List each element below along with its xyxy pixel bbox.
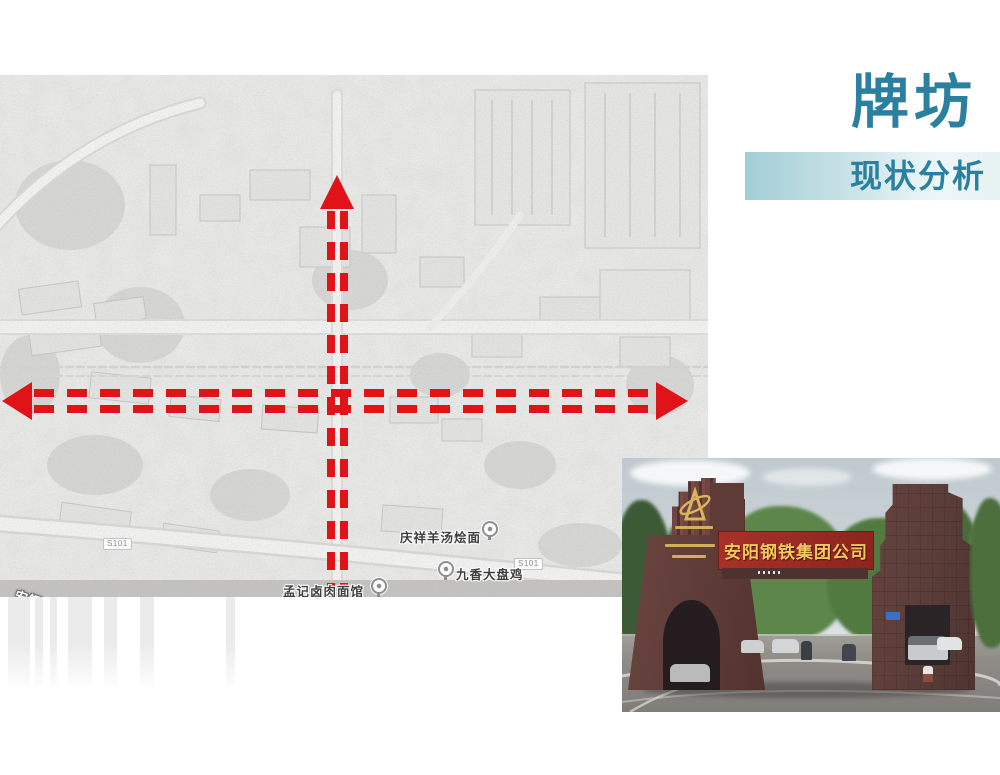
- map-texture: [0, 75, 708, 597]
- car: [772, 639, 799, 653]
- stripe: [104, 597, 117, 690]
- company-logo-icon: [677, 486, 713, 526]
- gate-sign: 安阳钢铁集团公司: [718, 531, 874, 570]
- gold-text-line: [665, 544, 715, 547]
- scooter-rider: [801, 641, 812, 660]
- map-pin-icon: [482, 521, 498, 537]
- map-fade-stripes: [0, 597, 560, 690]
- stripe: [226, 597, 235, 690]
- stripe: [68, 597, 92, 690]
- car-in-arch: [670, 664, 710, 682]
- axis-arrowhead-right-icon: [656, 382, 688, 420]
- gold-text-line: [675, 526, 713, 529]
- stripe: [35, 597, 43, 690]
- stripe: [50, 597, 57, 690]
- pedestrian: [842, 644, 856, 661]
- axis-arrowhead-left-icon: [2, 382, 32, 420]
- child-figure: [923, 666, 933, 682]
- gate-photo: 安阳钢铁集团公司: [622, 458, 1000, 712]
- gold-text-line: [672, 555, 706, 558]
- car: [741, 640, 764, 653]
- poi-label: 庆祥羊汤烩面: [400, 527, 481, 546]
- car: [937, 637, 962, 650]
- map-pin-icon: [438, 561, 454, 577]
- sign-small-text-marks: [758, 571, 780, 574]
- vertical-axis-dashed-line: [327, 211, 348, 597]
- site-satellite-map: 安钢大道 S101 S101 庆祥羊汤烩面 九香大盘鸡 孟记卤肉面馆: [0, 75, 708, 597]
- sign-under-beam: [722, 568, 868, 579]
- page-subtitle: 现状分析: [850, 160, 986, 192]
- poi-label: 孟记卤肉面馆: [283, 581, 364, 597]
- page-title: 牌坊: [851, 74, 977, 132]
- stripe: [8, 597, 30, 690]
- stripe: [140, 597, 154, 690]
- poi-label: 九香大盘鸡: [456, 564, 524, 583]
- gate-sign-text: 安阳钢铁集团公司: [724, 538, 868, 563]
- axis-arrowhead-up-icon: [320, 175, 354, 209]
- blue-sign: [886, 612, 900, 620]
- tree: [970, 498, 1000, 648]
- route-badge-s101: S101: [103, 538, 132, 550]
- map-pin-icon: [371, 578, 387, 594]
